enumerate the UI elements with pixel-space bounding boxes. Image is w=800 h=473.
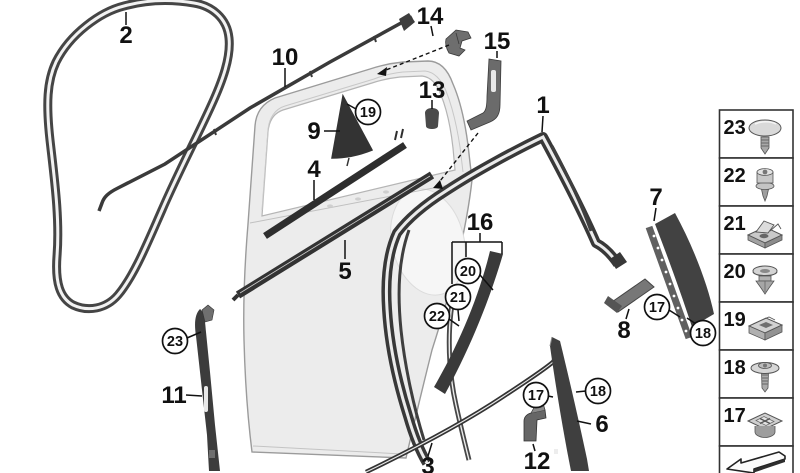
svg-text:11: 11 bbox=[161, 382, 186, 409]
legend-footer-arrow[interactable] bbox=[720, 446, 794, 473]
callout-7[interactable]: 7 bbox=[649, 184, 662, 211]
callout-15[interactable]: 15 bbox=[484, 28, 511, 55]
svg-text:4: 4 bbox=[307, 156, 321, 183]
callout-19[interactable]: 19 bbox=[356, 100, 381, 125]
svg-text:23: 23 bbox=[724, 117, 746, 139]
callout-10[interactable]: 10 bbox=[272, 44, 299, 71]
callout-2[interactable]: 2 bbox=[119, 22, 132, 49]
svg-text:3: 3 bbox=[421, 453, 434, 473]
legend-item-21[interactable]: 21 bbox=[720, 206, 794, 254]
callout-13[interactable]: 13 bbox=[419, 77, 446, 104]
callout-17a[interactable]: 17 bbox=[645, 295, 670, 320]
callout-16[interactable]: 16 bbox=[467, 209, 494, 236]
callout-8[interactable]: 8 bbox=[617, 317, 630, 344]
callout-4[interactable]: 4 bbox=[307, 156, 321, 183]
legend-item-20[interactable]: 20 bbox=[720, 254, 794, 302]
callout-18a[interactable]: 18 bbox=[691, 321, 716, 346]
svg-text:18: 18 bbox=[724, 357, 746, 379]
svg-text:14: 14 bbox=[417, 3, 444, 30]
svg-text:7: 7 bbox=[649, 184, 662, 211]
svg-text:22: 22 bbox=[724, 165, 746, 187]
svg-text:22: 22 bbox=[429, 309, 445, 325]
parts-diagram-page: 2101415139194151620212278171823111718612… bbox=[0, 0, 800, 473]
callout-21[interactable]: 21 bbox=[446, 285, 471, 310]
svg-text:1: 1 bbox=[536, 92, 549, 119]
callout-20[interactable]: 20 bbox=[456, 259, 481, 284]
svg-text:5: 5 bbox=[338, 258, 351, 285]
callout-6[interactable]: 6 bbox=[595, 411, 608, 438]
legend-item-19[interactable]: 19 bbox=[720, 302, 794, 350]
legend-item-17[interactable]: 17 bbox=[720, 398, 794, 446]
svg-text:12: 12 bbox=[524, 448, 551, 473]
aperture-seal-2 bbox=[48, 1, 230, 309]
svg-text:19: 19 bbox=[360, 105, 376, 121]
svg-text:9: 9 bbox=[307, 118, 320, 145]
svg-text:20: 20 bbox=[460, 264, 476, 280]
callout-23[interactable]: 23 bbox=[163, 329, 188, 354]
callout-12[interactable]: 12 bbox=[524, 448, 551, 473]
svg-text:23: 23 bbox=[167, 334, 183, 350]
clip-14 bbox=[446, 30, 471, 56]
callout-17b[interactable]: 17 bbox=[524, 383, 549, 408]
svg-text:19: 19 bbox=[724, 309, 746, 331]
legend-item-18[interactable]: 18 bbox=[720, 350, 794, 398]
trim-blade-6 bbox=[550, 337, 589, 471]
corner-piece-15 bbox=[467, 59, 501, 130]
svg-text:2: 2 bbox=[119, 22, 132, 49]
callout-1[interactable]: 1 bbox=[536, 92, 549, 119]
svg-text:20: 20 bbox=[724, 261, 746, 283]
svg-text:18: 18 bbox=[695, 326, 711, 342]
callout-9[interactable]: 9 bbox=[307, 118, 320, 145]
svg-text:10: 10 bbox=[272, 44, 299, 71]
callout-18b[interactable]: 18 bbox=[586, 379, 611, 404]
cap-13 bbox=[425, 108, 439, 129]
svg-text:17: 17 bbox=[724, 405, 746, 427]
svg-text:21: 21 bbox=[450, 290, 466, 306]
parts-diagram: 2101415139194151620212278171823111718612… bbox=[0, 0, 800, 473]
callout-11[interactable]: 11 bbox=[161, 382, 186, 409]
fastener-legend: 23222120191817 bbox=[720, 110, 794, 446]
svg-text:6: 6 bbox=[595, 411, 608, 438]
svg-text:15: 15 bbox=[484, 28, 511, 55]
svg-text:17: 17 bbox=[528, 388, 544, 404]
bracket-12 bbox=[524, 403, 546, 441]
callout-3[interactable]: 3 bbox=[421, 453, 434, 473]
legend-item-23[interactable]: 23 bbox=[720, 110, 794, 158]
svg-text:17: 17 bbox=[649, 300, 665, 316]
svg-text:16: 16 bbox=[467, 209, 494, 236]
svg-text:13: 13 bbox=[419, 77, 446, 104]
pillar-trim-11 bbox=[195, 305, 220, 471]
svg-text:8: 8 bbox=[617, 317, 630, 344]
svg-text:18: 18 bbox=[590, 384, 606, 400]
callout-5[interactable]: 5 bbox=[338, 258, 351, 285]
callout-22[interactable]: 22 bbox=[425, 304, 450, 329]
callout-14[interactable]: 14 bbox=[417, 3, 444, 30]
legend-item-22[interactable]: 22 bbox=[720, 158, 794, 206]
svg-text:21: 21 bbox=[724, 213, 746, 235]
